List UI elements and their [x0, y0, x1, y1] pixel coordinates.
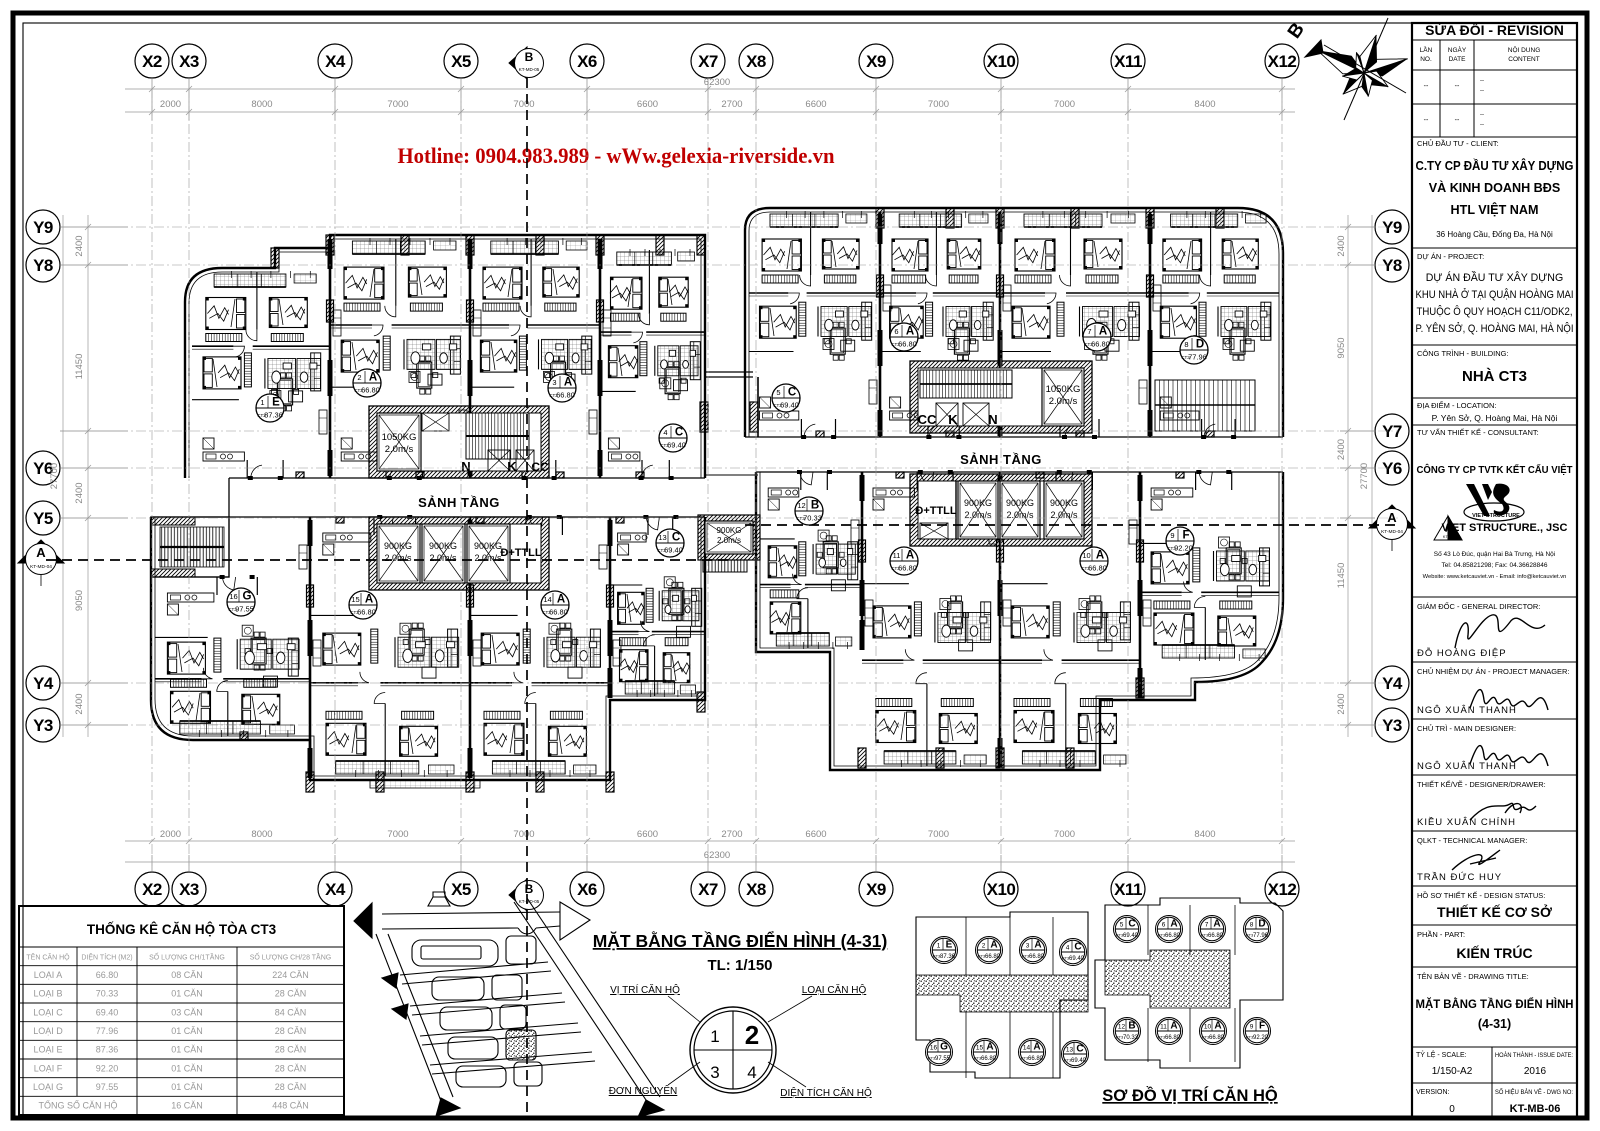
- svg-text:66.80: 66.80: [898, 340, 917, 349]
- svg-text:Đ+TTLL: Đ+TTLL: [915, 505, 957, 517]
- svg-text:92.20: 92.20: [96, 1063, 119, 1073]
- svg-text:X5: X5: [451, 52, 471, 71]
- svg-text:C: C: [1074, 942, 1081, 953]
- svg-text:Y9: Y9: [33, 218, 53, 237]
- svg-text:ĐỖ HOÀNG ĐIỆP: ĐỖ HOÀNG ĐIỆP: [1417, 647, 1507, 659]
- svg-text:7000: 7000: [1054, 99, 1075, 110]
- svg-text:4: 4: [663, 428, 667, 437]
- svg-text:--: --: [1480, 88, 1484, 94]
- svg-text:X2: X2: [142, 880, 162, 899]
- svg-text:A: A: [906, 550, 914, 562]
- svg-text:66.80: 66.80: [549, 608, 568, 617]
- svg-text:B: B: [525, 882, 534, 896]
- svg-text:77.96: 77.96: [96, 1026, 119, 1036]
- svg-text:A: A: [1034, 940, 1041, 951]
- svg-text:LOẠI C: LOẠI C: [33, 1007, 63, 1017]
- svg-text:Y9: Y9: [1382, 218, 1402, 237]
- svg-text:X8: X8: [746, 880, 766, 899]
- svg-text:69.40: 69.40: [1069, 956, 1085, 962]
- svg-text:2.0m/s: 2.0m/s: [384, 553, 412, 563]
- svg-text:9050: 9050: [74, 590, 85, 611]
- svg-text:2000: 2000: [160, 99, 181, 110]
- svg-text:SƠ ĐỒ VỊ TRÍ CĂN HỘ: SƠ ĐỒ VỊ TRÍ CĂN HỘ: [1102, 1086, 1278, 1105]
- svg-text:A: A: [986, 1042, 993, 1053]
- svg-text:A: A: [564, 377, 572, 389]
- svg-text:--: --: [1480, 78, 1484, 84]
- svg-text:2: 2: [982, 943, 986, 950]
- svg-text:2400: 2400: [1336, 439, 1347, 460]
- svg-text:ĐƠN NGUYÊN: ĐƠN NGUYÊN: [609, 1084, 678, 1097]
- svg-text:8000: 8000: [251, 829, 272, 840]
- svg-text:66.80: 66.80: [1209, 1035, 1225, 1041]
- svg-text:69.40: 69.40: [780, 401, 799, 410]
- svg-text:66.80: 66.80: [357, 608, 376, 617]
- svg-text:13: 13: [1066, 1047, 1074, 1054]
- svg-text:27700: 27700: [1359, 463, 1370, 489]
- svg-text:2400: 2400: [74, 235, 85, 256]
- svg-text:C: C: [1128, 919, 1135, 930]
- svg-text:11: 11: [1160, 1024, 1167, 1031]
- svg-text:(4-31): (4-31): [1478, 1017, 1511, 1031]
- svg-text:DATE: DATE: [1449, 56, 1467, 63]
- svg-text:P. YÊN SỞ, Q. HOÀNG MAI, HÀ NỘ: P. YÊN SỞ, Q. HOÀNG MAI, HÀ NỘI: [1416, 322, 1574, 335]
- svg-text:3: 3: [1026, 943, 1030, 950]
- svg-text:K: K: [948, 412, 958, 427]
- svg-text:Y8: Y8: [33, 256, 53, 275]
- svg-text:KHU NHÀ Ở TẠI QUẬN HOÀNG MAI: KHU NHÀ Ở TẠI QUẬN HOÀNG MAI: [1416, 288, 1574, 301]
- svg-text:VỊ TRÍ CĂN HỘ: VỊ TRÍ CĂN HỘ: [610, 983, 680, 996]
- svg-text:69.40: 69.40: [1123, 933, 1139, 939]
- svg-text:LOẠI CĂN HỘ: LOẠI CĂN HỘ: [802, 983, 867, 996]
- svg-text:28 CĂN: 28 CĂN: [275, 1082, 307, 1092]
- svg-text:70.33: 70.33: [803, 514, 822, 523]
- svg-text:X7: X7: [698, 880, 718, 899]
- svg-text:VÀ KINH DOANH BĐS: VÀ KINH DOANH BĐS: [1429, 180, 1561, 195]
- svg-text:8000: 8000: [251, 99, 272, 110]
- svg-text:2700: 2700: [721, 99, 742, 110]
- svg-text:2.0m/s: 2.0m/s: [385, 444, 414, 455]
- svg-text:THUỘC Ô QUY HOẠCH C11/ODK2,: THUỘC Ô QUY HOẠCH C11/ODK2,: [1417, 305, 1573, 318]
- svg-text:01 CĂN: 01 CĂN: [171, 1082, 203, 1092]
- svg-text:7000: 7000: [513, 829, 534, 840]
- svg-text:3: 3: [552, 378, 556, 387]
- svg-text:14: 14: [543, 595, 551, 604]
- svg-text:66.80: 66.80: [1165, 933, 1181, 939]
- svg-text:70.33: 70.33: [1123, 1035, 1139, 1041]
- svg-text:X3: X3: [179, 52, 199, 71]
- svg-text:16 CĂN: 16 CĂN: [171, 1101, 203, 1111]
- svg-text:Y4: Y4: [33, 674, 54, 693]
- svg-text:66.80: 66.80: [96, 970, 119, 980]
- svg-text:Hotline: 0904.983.989 - wWw.ge: Hotline: 0904.983.989 - wWw.gelexia-rive…: [398, 143, 835, 168]
- svg-text:92.20: 92.20: [1174, 544, 1193, 553]
- svg-text:SỬA ĐỔI - REVISION: SỬA ĐỔI - REVISION: [1425, 21, 1564, 38]
- svg-text:66.80: 66.80: [981, 1056, 997, 1062]
- svg-text:DIỆN TÍCH (M2): DIỆN TÍCH (M2): [81, 952, 132, 961]
- svg-text:NỘI DUNG: NỘI DUNG: [1508, 45, 1541, 54]
- svg-text:DỰ ÁN - PROJECT:: DỰ ÁN - PROJECT:: [1417, 252, 1484, 261]
- svg-text:A: A: [1033, 1042, 1040, 1053]
- svg-text:THIẾT KẾ/VẼ - DESIGNER/DRAWER:: THIẾT KẾ/VẼ - DESIGNER/DRAWER:: [1417, 779, 1546, 789]
- svg-text:LOẠI F: LOẠI F: [34, 1063, 63, 1073]
- svg-text:A: A: [1096, 550, 1104, 562]
- svg-text:D: D: [1196, 339, 1204, 351]
- svg-text:69.40: 69.40: [664, 546, 683, 555]
- svg-text:P. Yên Sở, Q. Hoàng Mai, Hà Nộ: P. Yên Sở, Q. Hoàng Mai, Hà Nội: [1432, 413, 1558, 423]
- svg-text:28 CĂN: 28 CĂN: [275, 1063, 307, 1073]
- svg-text:15: 15: [976, 1045, 984, 1052]
- svg-text:Y8: Y8: [1382, 256, 1402, 275]
- svg-text:THỐNG KÊ CĂN HỘ TÒA CT3: THỐNG KÊ CĂN HỘ TÒA CT3: [87, 922, 277, 937]
- svg-text:D: D: [1258, 919, 1265, 930]
- svg-text:6600: 6600: [805, 99, 826, 110]
- svg-text:F: F: [1182, 530, 1189, 542]
- svg-text:G: G: [940, 1042, 948, 1053]
- svg-text:--: --: [1455, 83, 1460, 90]
- svg-text:2400: 2400: [1336, 693, 1347, 714]
- svg-text:0: 0: [1449, 1104, 1455, 1115]
- svg-text:TỶ LỆ - SCALE:: TỶ LỆ - SCALE:: [1416, 1050, 1467, 1059]
- svg-text:66.80: 66.80: [898, 564, 917, 573]
- svg-text:66.80: 66.80: [1165, 1035, 1181, 1041]
- svg-text:KT-MD-05: KT-MD-05: [519, 67, 540, 72]
- svg-text:8400: 8400: [1194, 829, 1215, 840]
- svg-text:Y6: Y6: [1382, 459, 1402, 478]
- svg-text:87.36: 87.36: [96, 1045, 119, 1055]
- svg-text:MẶT BẰNG TẦNG ĐIỂN HÌNH: MẶT BẰNG TẦNG ĐIỂN HÌNH: [1416, 996, 1574, 1011]
- svg-text:6: 6: [894, 327, 898, 336]
- svg-text:1: 1: [260, 398, 264, 407]
- svg-text:7000: 7000: [387, 829, 408, 840]
- svg-text:DỰ ÁN ĐẦU TƯ XÂY DỰNG: DỰ ÁN ĐẦU TƯ XÂY DỰNG: [1426, 271, 1563, 284]
- svg-text:--: --: [1424, 117, 1429, 124]
- svg-text:HỒ SƠ THIẾT KẾ - DESIGN STATUS: HỒ SƠ THIẾT KẾ - DESIGN STATUS:: [1417, 890, 1545, 900]
- svg-text:84 CĂN: 84 CĂN: [275, 1007, 307, 1017]
- svg-text:28 CĂN: 28 CĂN: [275, 1026, 307, 1036]
- svg-text:2: 2: [357, 373, 361, 382]
- svg-text:66.80: 66.80: [361, 386, 380, 395]
- svg-text:28 CĂN: 28 CĂN: [275, 1045, 307, 1055]
- svg-text:10: 10: [1082, 551, 1090, 560]
- svg-text:03 CĂN: 03 CĂN: [171, 1007, 203, 1017]
- svg-text:X11: X11: [1114, 880, 1142, 899]
- svg-text:--: --: [1480, 112, 1484, 118]
- svg-text:B: B: [811, 500, 819, 512]
- svg-text:NO.: NO.: [1420, 56, 1432, 63]
- svg-text:X10: X10: [987, 52, 1016, 71]
- svg-text:NGÔ XUÂN THANH: NGÔ XUÂN THANH: [1417, 761, 1517, 772]
- svg-text:01 CĂN: 01 CĂN: [171, 1026, 203, 1036]
- svg-text:B: B: [525, 50, 534, 64]
- svg-text:7000: 7000: [928, 99, 949, 110]
- svg-text:1/150-A2: 1/150-A2: [1432, 1066, 1473, 1077]
- svg-text:87.36: 87.36: [940, 954, 956, 960]
- svg-text:K: K: [507, 459, 517, 474]
- svg-text:7000: 7000: [387, 99, 408, 110]
- svg-text:Tel: 04.85821298; Fax: 04.3662: Tel: 04.85821298; Fax: 04.36628846: [1442, 562, 1548, 569]
- svg-text:27700: 27700: [49, 463, 60, 489]
- svg-text:66.80: 66.80: [1088, 564, 1107, 573]
- svg-text:11: 11: [893, 551, 901, 560]
- svg-text:TÊN CĂN HỘ: TÊN CĂN HỘ: [26, 952, 70, 961]
- svg-text:KIẾN TRÚC: KIẾN TRÚC: [1456, 944, 1532, 961]
- svg-text:9: 9: [1250, 1024, 1254, 1031]
- svg-text:C: C: [788, 387, 796, 399]
- svg-text:2400: 2400: [74, 482, 85, 503]
- svg-text:X5: X5: [451, 880, 471, 899]
- svg-text:77.96: 77.96: [1188, 353, 1207, 362]
- svg-text:C: C: [675, 427, 683, 439]
- svg-text:Đ+TTLL: Đ+TTLL: [500, 547, 542, 559]
- svg-text:CC: CC: [531, 460, 549, 474]
- svg-text:TỔNG SỐ CĂN HỘ: TỔNG SỐ CĂN HỘ: [38, 1100, 117, 1111]
- svg-text:X9: X9: [866, 880, 886, 899]
- svg-text:C.TY CP ĐẦU TƯ XÂY DỰNG: C.TY CP ĐẦU TƯ XÂY DỰNG: [1416, 158, 1574, 173]
- svg-text:--: --: [1424, 83, 1429, 90]
- svg-text:15: 15: [351, 595, 359, 604]
- svg-text:7000: 7000: [928, 829, 949, 840]
- svg-text:HTL VIỆT NAM: HTL VIỆT NAM: [1451, 202, 1539, 217]
- svg-text:X10: X10: [987, 880, 1016, 899]
- svg-text:X6: X6: [577, 880, 597, 899]
- svg-text:CHỦ TRÌ - MAIN DESIGNER:: CHỦ TRÌ - MAIN DESIGNER:: [1417, 724, 1516, 733]
- svg-text:900KG: 900KG: [964, 498, 992, 508]
- svg-text:CHỦ ĐẦU TƯ - CLIENT:: CHỦ ĐẦU TƯ - CLIENT:: [1417, 138, 1499, 148]
- svg-text:77.96: 77.96: [1253, 933, 1269, 939]
- svg-text:900KG: 900KG: [1050, 498, 1078, 508]
- svg-text:11450: 11450: [74, 354, 85, 380]
- svg-text:C: C: [672, 532, 680, 544]
- svg-text:Số 43 Lò Đúc, quận Hai Bà Trưn: Số 43 Lò Đúc, quận Hai Bà Trưng, Hà Nội: [1434, 549, 1555, 558]
- svg-text:X4: X4: [325, 880, 346, 899]
- svg-text:08 CĂN: 08 CĂN: [171, 970, 203, 980]
- svg-text:224 CĂN: 224 CĂN: [272, 970, 309, 980]
- svg-text:THIẾT KẾ CƠ SỞ: THIẾT KẾ CƠ SỞ: [1437, 903, 1552, 920]
- svg-text:X3: X3: [179, 880, 199, 899]
- svg-text:C: C: [1076, 1044, 1083, 1055]
- svg-text:A: A: [1170, 919, 1177, 930]
- svg-text:14: 14: [1023, 1045, 1031, 1052]
- svg-text:A: A: [1214, 1021, 1221, 1032]
- svg-text:13: 13: [658, 533, 666, 542]
- svg-text:N: N: [988, 412, 997, 427]
- svg-text:CHỦ NHIỆM DỰ ÁN - PROJECT MANA: CHỦ NHIỆM DỰ ÁN - PROJECT MANAGER:: [1417, 667, 1570, 676]
- svg-text:66.80: 66.80: [985, 954, 1001, 960]
- svg-text:A: A: [36, 545, 46, 560]
- svg-text:CC: CC: [918, 412, 937, 427]
- svg-text:11450: 11450: [1336, 563, 1347, 589]
- svg-text:4: 4: [1066, 945, 1070, 952]
- svg-text:16: 16: [229, 592, 237, 601]
- svg-text:448 CĂN: 448 CĂN: [272, 1101, 309, 1111]
- svg-text:9050: 9050: [1336, 337, 1347, 358]
- svg-text:Website: www.ketcauviet.vn - E: Website: www.ketcauviet.vn - Email: info…: [1423, 574, 1567, 580]
- svg-text:6600: 6600: [805, 829, 826, 840]
- svg-text:1: 1: [937, 943, 941, 950]
- svg-text:QLKT - TECHNICAL MANAGER:: QLKT - TECHNICAL MANAGER:: [1417, 836, 1527, 845]
- svg-text:X12: X12: [1268, 52, 1297, 71]
- svg-text:2.0m/s: 2.0m/s: [717, 536, 741, 545]
- svg-text:2.0m/s: 2.0m/s: [474, 553, 502, 563]
- svg-text:LOẠI E: LOẠI E: [33, 1045, 62, 1055]
- svg-text:9: 9: [1170, 531, 1174, 540]
- svg-text:KIỀU XUÂN CHÍNH: KIỀU XUÂN CHÍNH: [1417, 817, 1516, 828]
- svg-text:KT-MD-04: KT-MD-04: [30, 564, 52, 570]
- svg-text:2: 2: [745, 1020, 759, 1050]
- svg-text:12: 12: [1118, 1024, 1126, 1031]
- svg-text:LOẠI A: LOẠI A: [34, 970, 63, 980]
- svg-text:36 Hoàng Cầu, Đống Đa, Hà Nội: 36 Hoàng Cầu, Đống Đa, Hà Nội: [1436, 230, 1553, 239]
- svg-text:E: E: [272, 397, 280, 409]
- svg-text:G: G: [243, 591, 252, 603]
- svg-text:87.36: 87.36: [264, 411, 283, 420]
- svg-text:10: 10: [1204, 1024, 1212, 1031]
- svg-text:X9: X9: [866, 52, 886, 71]
- svg-text:X2: X2: [142, 52, 162, 71]
- svg-text:7000: 7000: [1054, 829, 1075, 840]
- svg-text:97.55: 97.55: [96, 1082, 119, 1092]
- svg-text:TƯ VẤN THIẾT KẾ - CONSULTAN: TƯ VẤN THIẾT KẾ - CONSULTANT:: [1417, 427, 1539, 437]
- svg-text:HOÀN THÀNH - ISSUE DATE:: HOÀN THÀNH - ISSUE DATE:: [1495, 1050, 1573, 1059]
- svg-text:X11: X11: [1114, 52, 1142, 71]
- svg-text:ĐỊA ĐIỂM - LOCATION:: ĐỊA ĐIỂM - LOCATION:: [1417, 401, 1496, 410]
- svg-text:16: 16: [930, 1045, 938, 1052]
- svg-text:8: 8: [1250, 922, 1254, 929]
- svg-text:KT-10: KT-10: [1443, 535, 1453, 539]
- svg-text:Y3: Y3: [1382, 716, 1402, 735]
- svg-text:VIET STRUCTURE., JSC: VIET STRUCTURE., JSC: [1442, 522, 1568, 534]
- svg-text:66.80: 66.80: [1029, 954, 1045, 960]
- svg-text:A: A: [557, 594, 565, 606]
- svg-text:VERSION:: VERSION:: [1416, 1089, 1450, 1096]
- svg-text:Y3: Y3: [33, 716, 53, 735]
- svg-text:5: 5: [1120, 922, 1124, 929]
- svg-text:3: 3: [710, 1063, 719, 1082]
- svg-text:69.40: 69.40: [1071, 1058, 1087, 1064]
- svg-text:97.55: 97.55: [235, 605, 254, 614]
- svg-text:Y4: Y4: [1382, 674, 1403, 693]
- svg-text:A: A: [1170, 1021, 1177, 1032]
- svg-text:900KG: 900KG: [384, 541, 412, 551]
- svg-text:5: 5: [776, 388, 780, 397]
- svg-text:N: N: [461, 459, 470, 474]
- svg-text:2.0m/s: 2.0m/s: [1006, 510, 1034, 520]
- svg-text:2016: 2016: [1524, 1066, 1547, 1077]
- svg-text:8400: 8400: [1194, 99, 1215, 110]
- svg-text:A: A: [369, 372, 377, 384]
- svg-text:2000: 2000: [160, 829, 181, 840]
- svg-text:X8: X8: [746, 52, 766, 71]
- svg-text:TÊN BẢN VẼ - DRAWING TITLE:: TÊN BẢN VẼ - DRAWING TITLE:: [1417, 972, 1529, 981]
- svg-text:KT-MB-06: KT-MB-06: [1510, 1103, 1561, 1115]
- svg-text:1: 1: [710, 1027, 719, 1046]
- svg-text:7: 7: [1087, 327, 1091, 336]
- svg-text:CÔNG TRÌNH - BUILDING:: CÔNG TRÌNH - BUILDING:: [1417, 349, 1509, 358]
- svg-text:TL: 1/150: TL: 1/150: [707, 957, 772, 974]
- svg-text:01 CĂN: 01 CĂN: [171, 1063, 203, 1073]
- svg-text:B: B: [1128, 1021, 1135, 1032]
- svg-text:CÔNG TY CP TVTK KẾT CẤU VIỆT: CÔNG TY CP TVTK KẾT CẤU VIỆT: [1417, 463, 1574, 476]
- svg-text:2.0m/s: 2.0m/s: [1049, 396, 1078, 407]
- svg-text:6600: 6600: [637, 99, 658, 110]
- svg-text:69.40: 69.40: [667, 441, 686, 450]
- svg-text:LOẠI D: LOẠI D: [33, 1026, 63, 1036]
- svg-text:6: 6: [1162, 922, 1166, 929]
- svg-text:Y7: Y7: [1382, 422, 1402, 441]
- svg-text:66.80: 66.80: [556, 391, 575, 400]
- svg-text:KT-MD-04: KT-MD-04: [1381, 529, 1403, 535]
- svg-text:DIỆN TÍCH CĂN HỘ: DIỆN TÍCH CĂN HỘ: [780, 1086, 872, 1099]
- svg-text:NGÀY: NGÀY: [1448, 45, 1467, 54]
- svg-text:2.0m/s: 2.0m/s: [964, 510, 992, 520]
- svg-text:97.55: 97.55: [935, 1056, 951, 1062]
- svg-text:--: --: [1480, 122, 1484, 128]
- svg-text:LOẠI B: LOẠI B: [33, 989, 62, 999]
- svg-text:PHẦN - PART:: PHẦN - PART:: [1417, 929, 1465, 939]
- svg-text:A: A: [1445, 525, 1451, 534]
- svg-text:2400: 2400: [74, 693, 85, 714]
- svg-text:66.80: 66.80: [1208, 933, 1224, 939]
- svg-text:2.0m/s: 2.0m/s: [429, 553, 457, 563]
- svg-text:Y5: Y5: [33, 509, 53, 528]
- svg-text:2400: 2400: [1336, 235, 1347, 256]
- svg-text:X4: X4: [325, 52, 346, 71]
- svg-text:A: A: [990, 940, 997, 951]
- svg-text:TRẦN ĐỨC HUY: TRẦN ĐỨC HUY: [1417, 872, 1502, 883]
- svg-text:A: A: [1387, 510, 1397, 525]
- svg-text:4: 4: [747, 1063, 756, 1082]
- svg-text:900KG: 900KG: [474, 541, 502, 551]
- svg-text:66.80: 66.80: [1091, 340, 1110, 349]
- svg-text:900KG: 900KG: [429, 541, 457, 551]
- svg-text:MẶT BẰNG TẦNG ĐIỂN HÌNH (4-31): MẶT BẰNG TẦNG ĐIỂN HÌNH (4-31): [593, 930, 888, 951]
- svg-text:28 CĂN: 28 CĂN: [275, 989, 307, 999]
- svg-text:LOẠI G: LOẠI G: [33, 1082, 63, 1092]
- svg-text:8: 8: [1184, 340, 1188, 349]
- svg-text:X12: X12: [1268, 880, 1297, 899]
- svg-text:CONTENT: CONTENT: [1508, 56, 1539, 63]
- svg-text:E: E: [946, 940, 953, 951]
- svg-text:--: --: [1455, 117, 1460, 124]
- svg-text:01 CĂN: 01 CĂN: [171, 989, 203, 999]
- svg-text:SẢNH TẦNG: SẢNH TẦNG: [418, 495, 500, 510]
- svg-text:2700: 2700: [721, 829, 742, 840]
- svg-text:2.0m/s: 2.0m/s: [1050, 510, 1078, 520]
- svg-text:62300: 62300: [704, 77, 730, 88]
- svg-text:X7: X7: [698, 52, 718, 71]
- svg-text:A: A: [1213, 919, 1220, 930]
- svg-text:VIET STRUCTURE: VIET STRUCTURE: [1472, 513, 1520, 519]
- svg-text:A: A: [365, 594, 373, 606]
- svg-text:A: A: [906, 326, 914, 338]
- svg-text:6600: 6600: [637, 829, 658, 840]
- svg-text:69.40: 69.40: [96, 1007, 119, 1017]
- svg-text:01 CĂN: 01 CĂN: [171, 1045, 203, 1055]
- svg-text:7: 7: [1205, 922, 1209, 929]
- svg-text:NHÀ CT3: NHÀ CT3: [1462, 368, 1527, 385]
- svg-text:GIÁM ĐỐC - GENERAL DIRECTOR:: GIÁM ĐỐC - GENERAL DIRECTOR:: [1417, 601, 1540, 611]
- svg-text:900KG: 900KG: [1006, 498, 1034, 508]
- svg-text:66.80: 66.80: [1028, 1056, 1044, 1062]
- svg-text:7000: 7000: [513, 99, 534, 110]
- svg-text:70.33: 70.33: [96, 989, 119, 999]
- svg-text:A: A: [1099, 326, 1107, 338]
- svg-text:900KG: 900KG: [717, 526, 742, 535]
- svg-text:1050KG: 1050KG: [1046, 384, 1081, 395]
- svg-text:92.20: 92.20: [1253, 1035, 1269, 1041]
- svg-text:12: 12: [797, 501, 805, 510]
- svg-text:X6: X6: [577, 52, 597, 71]
